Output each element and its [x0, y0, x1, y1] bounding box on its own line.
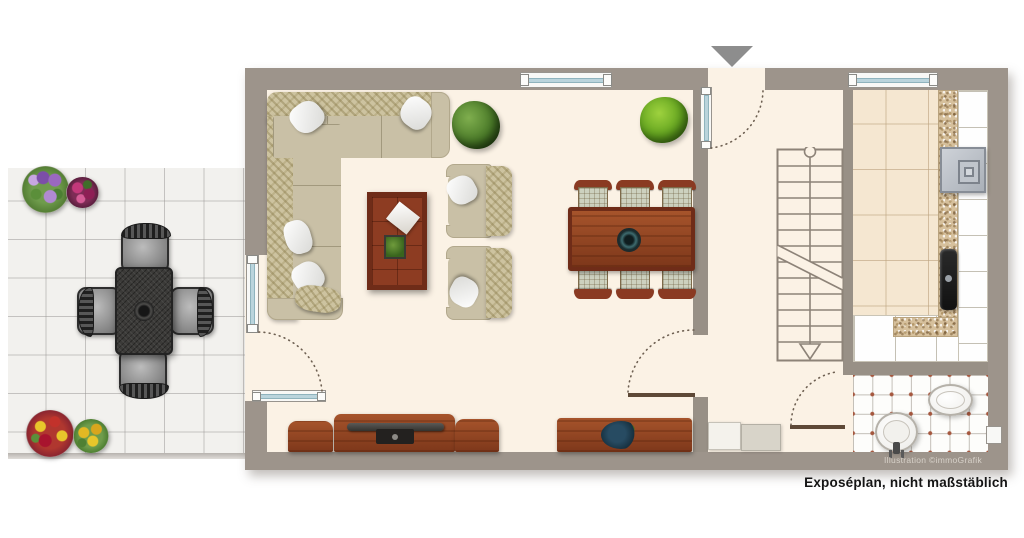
window-glass	[250, 263, 255, 325]
flower-pot-icon	[73, 419, 109, 453]
entrance-opening	[708, 68, 765, 90]
living-hall-door-leaf	[628, 393, 695, 397]
door-glass	[704, 95, 709, 141]
garden-table-medallion	[134, 301, 154, 321]
garden-chair-back	[197, 287, 213, 337]
entrance-door-leaf	[700, 87, 712, 149]
garden-chair	[119, 349, 167, 393]
window-glass	[528, 78, 604, 83]
kitchen-worktop-bottom	[893, 317, 958, 337]
window	[848, 72, 938, 88]
window-cap	[603, 74, 612, 86]
wall-kitchen-bath	[843, 362, 988, 375]
flower-pot-icon	[22, 166, 69, 213]
toilet-icon	[928, 384, 973, 416]
magazine	[386, 201, 420, 234]
sofa-arm-right	[431, 92, 450, 158]
entrance-arrow-icon	[711, 46, 753, 67]
tv-cabinet-left	[288, 421, 333, 452]
faucet-icon	[893, 442, 900, 454]
faucet-icon	[945, 275, 952, 282]
dining-chair	[616, 268, 654, 298]
dining-chair-back	[574, 289, 612, 299]
bathroom-window	[986, 426, 1002, 444]
dining-chair	[658, 180, 696, 210]
dining-chair	[658, 268, 696, 298]
plan-caption: Exposéplan, nicht maßstäblich	[804, 475, 1008, 490]
flower-pot-icon	[26, 410, 74, 457]
kitchen-counter-right	[958, 90, 988, 362]
toilet-bowl	[936, 391, 965, 409]
terrace-door-side-panel	[246, 255, 259, 333]
window-glass	[856, 78, 930, 83]
window-cap	[247, 255, 258, 264]
door-cap	[317, 392, 326, 401]
staircase-newel	[805, 147, 816, 157]
stair-direction-arrow-icon	[800, 344, 820, 359]
window	[520, 72, 612, 88]
tv-base	[376, 429, 414, 444]
armchair-back	[486, 166, 512, 236]
door-cap	[252, 392, 261, 401]
garden-chair-back	[78, 287, 94, 337]
hall-bench	[741, 424, 781, 451]
window-cap	[247, 324, 258, 333]
door-cap	[701, 87, 711, 95]
table-plant-icon	[384, 235, 406, 259]
tv-cabinet-right	[455, 419, 499, 452]
garden-chair	[170, 287, 214, 335]
door-cap	[701, 141, 711, 149]
door-glass	[260, 394, 318, 399]
wall-living-hall-stub	[693, 397, 708, 452]
garden-table	[115, 267, 173, 355]
window-cap	[848, 74, 857, 86]
dining-chair-back	[616, 289, 654, 299]
coffee-table	[367, 192, 427, 290]
armchair	[446, 246, 512, 320]
window-cap	[520, 74, 529, 86]
floor-plan: Illustration ©immoGrafik Exposéplan, nic…	[0, 0, 1024, 538]
dining-chair-back	[658, 289, 696, 299]
table-bowl-icon	[617, 228, 641, 252]
dining-chair	[574, 268, 612, 298]
flower-pot-icon	[66, 177, 99, 208]
kitchen-sink-icon	[940, 249, 957, 310]
dining-chair	[574, 180, 612, 210]
washbasin-icon	[875, 412, 918, 452]
garden-chair-back	[121, 223, 171, 239]
bathroom-door-leaf	[790, 425, 845, 429]
stove-knob	[964, 167, 974, 177]
terrace-door-leaf	[252, 390, 326, 402]
potted-plant-icon	[452, 101, 500, 149]
armchair	[446, 164, 512, 238]
staircase	[775, 147, 845, 363]
armchair-back	[486, 248, 512, 318]
watermark: Illustration ©immoGrafik	[884, 455, 1004, 465]
washbasin-bowl	[883, 420, 910, 444]
shoe-cabinet	[708, 422, 741, 450]
window-cap	[929, 74, 938, 86]
bathroom-floor	[853, 375, 988, 452]
tv-base-dot	[392, 434, 398, 440]
sideboard-plant-icon	[601, 421, 641, 449]
stove-icon	[940, 147, 986, 193]
kitchen-floor	[853, 90, 938, 317]
dining-chair	[616, 180, 654, 210]
